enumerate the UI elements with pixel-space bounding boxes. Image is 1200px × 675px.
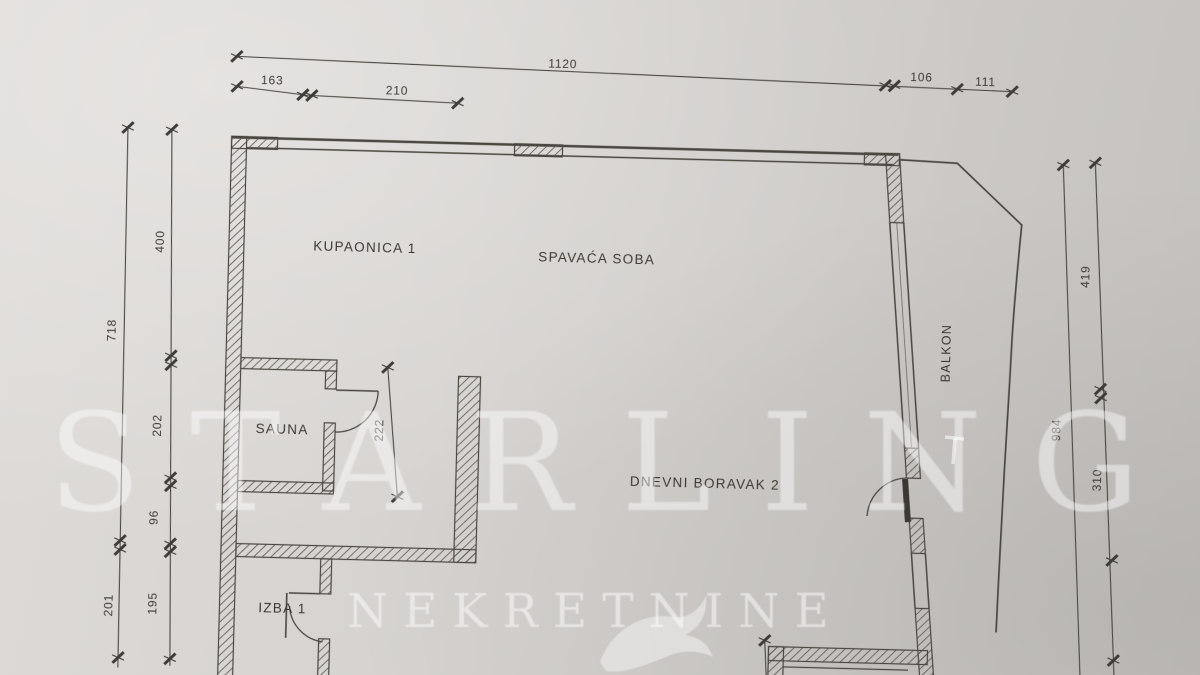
dim-top-right-b: 111 — [975, 75, 996, 90]
dim-top-left-a: 163 — [261, 73, 284, 88]
room-label-bedroom: SPAVAĆA SOBA — [538, 249, 655, 267]
dim-left-outer-a: 718 — [104, 319, 119, 342]
wall-right-pier-belowdoor — [908, 518, 926, 553]
floor-plan-photo: 1120 163 210 106 111 718 201 400 202 96 … — [0, 0, 1200, 675]
wall-top-inner-line — [246, 148, 893, 165]
dim-top-right-a: 106 — [910, 70, 933, 85]
dim-right-inner-a: 419 — [1078, 265, 1093, 288]
wall-bottomroom-top — [768, 646, 927, 664]
wall-sauna-jog — [325, 371, 336, 389]
dim-left-inner-d: 195 — [145, 592, 160, 615]
dim-left-outer-b: 201 — [101, 594, 116, 617]
dim-left-inner-b: 202 — [150, 414, 165, 437]
dim-left-inner-c: 96 — [147, 510, 161, 525]
pantry-door-notch — [289, 593, 320, 594]
room-label-living-room: DNEVNI BORAVAK 2 — [630, 474, 780, 493]
dim-right-outer-a: 984 — [1049, 419, 1064, 442]
wall-hallway-vertical — [454, 376, 481, 563]
room-labels: KUPAONICA 1 SPAVAĆA SOBA SAUNA DNEVNI BO… — [251, 237, 956, 633]
wall-pantry-right-lower — [318, 639, 330, 675]
wall-top-corner-left — [231, 136, 277, 149]
wall-right-window-lower — [910, 553, 931, 608]
room-label-balcony: BALKON — [939, 324, 955, 383]
wall-right-pier-mid — [904, 448, 921, 478]
floor-plan-drawing: 1120 163 210 106 111 718 201 400 202 96 … — [0, 0, 1200, 675]
wall-bottomroom-inner-line — [783, 667, 908, 670]
wall-bathroom-sauna — [241, 358, 337, 372]
wall-left-exterior — [217, 136, 247, 675]
wall-sauna-right — [323, 423, 336, 491]
dim-right-inner-b: 310 — [1090, 469, 1105, 492]
wall-right-pier-top — [884, 153, 906, 222]
balcony-door-leaf — [904, 479, 909, 522]
room-label-sauna: SAUNA — [255, 421, 308, 437]
wall-top-outer-line — [232, 137, 899, 154]
wall-right-window-upper — [884, 223, 925, 449]
interior-walls — [233, 358, 935, 675]
dim-left-inner-a: 400 — [153, 230, 168, 253]
room-label-bathroom: KUPAONICA 1 — [313, 238, 417, 256]
room-label-pantry: IZBA 1 — [258, 600, 307, 616]
balcony-door — [867, 477, 909, 522]
balcony-floor-mark — [945, 437, 964, 464]
dim-top-left-b: 210 — [386, 83, 409, 98]
wall-pantry-right-upper — [320, 559, 332, 594]
wall-top-pier — [514, 144, 562, 157]
wall-sauna-bottom — [237, 481, 333, 495]
dim-top-total: 1120 — [548, 57, 577, 72]
sauna-door-leaf — [336, 390, 378, 391]
wall-pantry-top — [236, 544, 476, 563]
wall-bottomroom-left — [768, 646, 784, 675]
dim-interior-a: 222 — [372, 419, 387, 442]
balcony-door-arc — [867, 477, 906, 517]
